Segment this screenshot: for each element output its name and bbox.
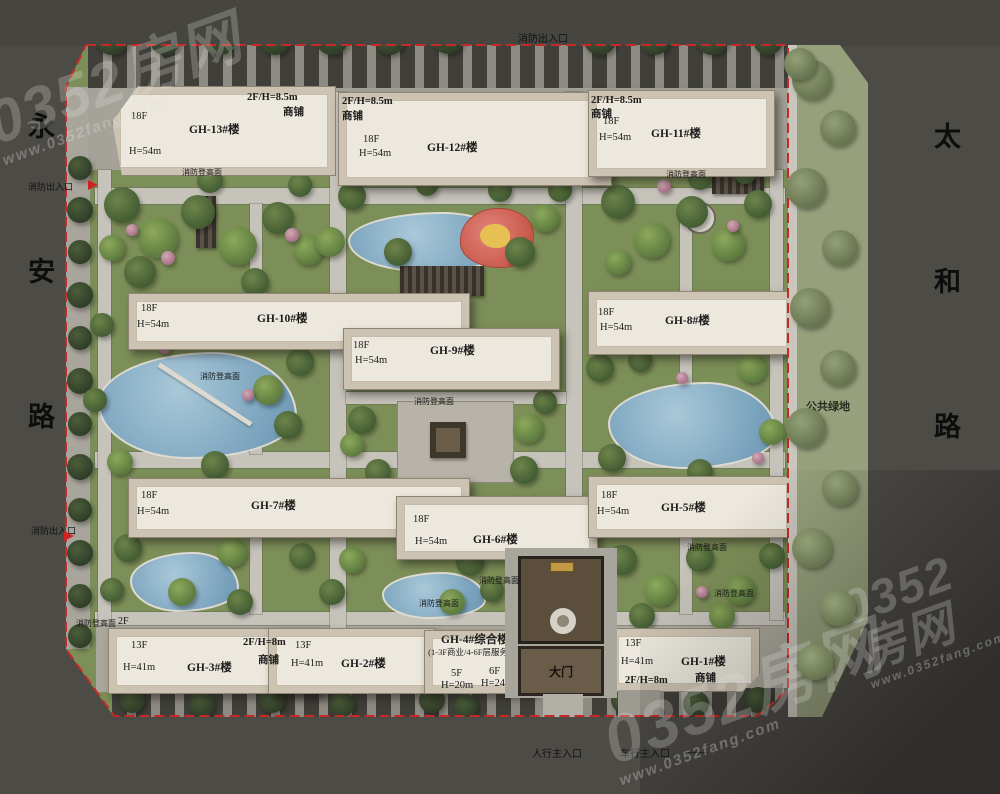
site-plan-canvas: 18F H=54m GH-13#楼 2F/H=8.5m 商铺 2F/H=8.5m… xyxy=(0,0,1000,794)
building-gh11: 2F/H=8.5m 商铺 18F H=54m GH-11#楼 xyxy=(588,90,775,177)
building-height: H=54m xyxy=(600,323,632,334)
tree xyxy=(598,444,626,472)
tree xyxy=(737,353,767,383)
tree xyxy=(68,412,92,436)
building-height: H=54m xyxy=(415,537,447,548)
tree xyxy=(219,227,257,265)
tree xyxy=(107,449,133,475)
tree xyxy=(822,230,858,266)
fire-entrance-arrow-lower xyxy=(64,531,74,541)
vehicle-entrance-label: 车行主入口 xyxy=(620,745,670,760)
tree xyxy=(676,372,688,384)
tree xyxy=(168,578,196,606)
tree xyxy=(68,156,92,180)
tree xyxy=(161,251,175,265)
shop-spec: 2F/H=8.5m xyxy=(591,96,642,107)
tree xyxy=(67,540,93,566)
tree xyxy=(319,579,345,605)
building-height: H=54m xyxy=(129,147,161,158)
tree xyxy=(288,173,312,197)
building-gh2: 13F H=41m GH-2#楼 xyxy=(268,628,435,694)
tree xyxy=(676,196,708,228)
tree xyxy=(601,185,635,219)
building-floors: 18F xyxy=(601,491,617,502)
tree xyxy=(68,240,92,264)
tree xyxy=(605,249,631,275)
tree xyxy=(384,238,412,266)
shop-label: 商铺 xyxy=(342,112,363,123)
tree xyxy=(822,470,858,506)
central-pavilion xyxy=(430,422,466,458)
tree xyxy=(727,220,739,232)
building-floors: 13F xyxy=(131,641,147,652)
tree xyxy=(68,584,92,608)
building-name: GH-3#楼 xyxy=(187,663,232,675)
shop-label: 商铺 xyxy=(283,108,304,119)
tree xyxy=(67,282,93,308)
tree xyxy=(285,228,299,242)
tree xyxy=(784,48,816,80)
pedestrian-entrance-label: 人行主入口 xyxy=(532,745,582,760)
tree xyxy=(510,456,538,484)
tree xyxy=(242,389,254,401)
building-floors: 18F xyxy=(603,117,619,128)
tree xyxy=(83,388,107,412)
tree xyxy=(505,237,535,267)
shop-spec: 2F/H=8.5m xyxy=(247,93,298,104)
fire-entrance-label-north: 消防出入口 xyxy=(518,30,568,45)
building-floors: 5F xyxy=(451,669,462,680)
tree xyxy=(253,375,283,405)
tree xyxy=(792,528,832,568)
building-floors-b: 6F xyxy=(489,667,500,678)
tree xyxy=(201,451,229,479)
building-name: GH-10#楼 xyxy=(257,314,307,326)
building-name: GH-12#楼 xyxy=(427,143,477,155)
gate-emblem xyxy=(548,606,578,636)
note-fire-access: 消防登高面 xyxy=(479,575,519,586)
tree xyxy=(181,195,215,229)
building-name: GH-4#综合楼 xyxy=(441,635,509,647)
tree xyxy=(340,433,364,457)
building-height: H=54m xyxy=(355,356,387,367)
tree xyxy=(90,313,114,337)
building-height: H=54m xyxy=(599,133,631,144)
tree xyxy=(531,204,559,232)
road-name-east: 太和路 xyxy=(926,122,965,557)
building-name: GH-7#楼 xyxy=(251,501,296,513)
note-fire-access: 消防登高面 xyxy=(419,598,459,609)
building-floors: 18F xyxy=(598,308,614,319)
tree xyxy=(99,235,125,261)
pond-west xyxy=(98,352,297,459)
building-floors: 18F xyxy=(413,515,429,526)
building-name: GH-11#楼 xyxy=(651,129,701,141)
building-height: H=54m xyxy=(597,507,629,518)
building-floors: 18F xyxy=(363,135,379,146)
tree xyxy=(124,256,156,288)
tree xyxy=(533,390,557,414)
tree xyxy=(786,168,826,208)
building-floors: 18F xyxy=(141,491,157,502)
tree xyxy=(67,197,93,223)
building-name: GH-13#楼 xyxy=(189,125,239,137)
building-gh9: 18F H=54m GH-9#楼 xyxy=(343,328,560,390)
tree xyxy=(114,534,142,562)
shop-spec: 2F/H=8.5m xyxy=(342,97,393,108)
tree xyxy=(790,288,830,328)
building-floors: 13F xyxy=(625,639,641,650)
building-height: H=54m xyxy=(359,149,391,160)
tree xyxy=(286,348,314,376)
tree xyxy=(338,182,366,210)
shop-spec-mid: 2F/H=8m xyxy=(243,638,286,649)
pond-south xyxy=(382,572,486,619)
building-gh12: 2F/H=8.5m 商铺 18F H=54m GH-12#楼 xyxy=(338,92,612,186)
pedestrian-entry-path xyxy=(543,694,583,718)
tree xyxy=(634,222,670,258)
note-fire-access: 消防登高面 xyxy=(182,167,222,178)
building-gh13: 18F H=54m GH-13#楼 2F/H=8.5m 商铺 xyxy=(112,86,336,176)
building-footprint xyxy=(346,100,604,178)
tree xyxy=(820,590,856,626)
note-fire-access: 消防登高面 xyxy=(200,371,240,382)
building-floors: 18F xyxy=(353,341,369,352)
tree xyxy=(289,543,315,569)
building-height: H=20m xyxy=(441,681,473,692)
main-gate: 大门 xyxy=(518,646,604,696)
tree xyxy=(274,411,302,439)
building-floors: 13F xyxy=(295,641,311,652)
building-name: GH-2#楼 xyxy=(341,659,386,671)
tree xyxy=(454,694,478,718)
tree xyxy=(711,227,745,261)
tree xyxy=(744,190,772,218)
tree xyxy=(126,224,138,236)
building-height: H=41m xyxy=(291,659,323,670)
note-fire-access-corner: 消防登高面 xyxy=(76,618,116,629)
road-top xyxy=(0,0,1000,46)
main-gate-label: 大门 xyxy=(549,663,573,680)
tree xyxy=(67,454,93,480)
playground-core xyxy=(480,224,510,248)
building-name: GH-9#楼 xyxy=(430,346,475,358)
tree xyxy=(586,354,614,382)
tree xyxy=(217,537,247,567)
pergola xyxy=(400,266,484,296)
tree xyxy=(513,413,543,443)
gate-plaque xyxy=(550,562,574,572)
building-gh8: 18F H=54m GH-8#楼 xyxy=(588,291,795,355)
tree xyxy=(241,268,269,296)
building-name: GH-8#楼 xyxy=(665,316,710,328)
tree xyxy=(339,547,365,573)
building-height: H=41m xyxy=(123,663,155,674)
tree xyxy=(657,179,671,193)
tree xyxy=(329,691,355,717)
tree xyxy=(68,326,92,350)
tree xyxy=(820,350,856,386)
road-name-west: 永安路 xyxy=(20,112,59,547)
tree xyxy=(189,691,215,717)
tree xyxy=(797,644,833,680)
tree xyxy=(759,419,785,445)
parking-row-north xyxy=(88,45,788,88)
tree xyxy=(68,498,92,522)
note-fire-access: 消防登高面 xyxy=(414,396,454,407)
building-name: GH-6#楼 xyxy=(473,535,518,547)
tree xyxy=(104,187,140,223)
tree xyxy=(752,452,764,464)
shop-label-mid: 商铺 xyxy=(258,656,279,667)
fire-entrance-label-west-upper: 消防出入口 xyxy=(28,180,73,193)
tree xyxy=(100,578,124,602)
tree xyxy=(315,227,345,257)
tree xyxy=(348,406,376,434)
vehicle-entrance-leader-line xyxy=(684,752,708,753)
tree xyxy=(227,589,253,615)
fire-entrance-arrow-upper xyxy=(88,180,98,190)
building-floors: 18F xyxy=(141,304,157,315)
tree xyxy=(786,408,826,448)
building-floors: 18F xyxy=(131,112,147,123)
note-fire-access: 消防登高面 xyxy=(666,169,706,180)
note-podium: 2F xyxy=(118,616,129,627)
tree xyxy=(820,110,856,146)
building-height: H=54m xyxy=(137,320,169,331)
pavilion-roof xyxy=(436,428,460,452)
building-height: H=54m xyxy=(137,507,169,518)
